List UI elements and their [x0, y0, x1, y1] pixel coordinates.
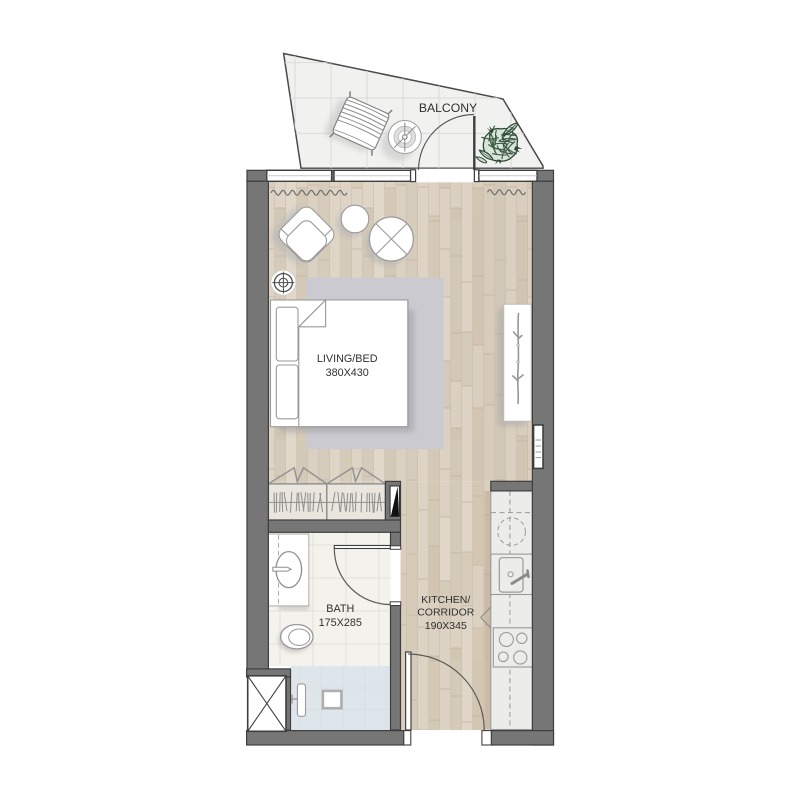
svg-text:KITCHEN/: KITCHEN/: [421, 594, 470, 606]
svg-text:190X345: 190X345: [425, 620, 467, 632]
svg-text:175X285: 175X285: [319, 617, 362, 629]
svg-text:380X430: 380X430: [326, 367, 369, 379]
svg-text:LIVING/BED: LIVING/BED: [317, 353, 378, 365]
svg-text:BATH: BATH: [326, 603, 354, 615]
svg-text:CORRIDOR: CORRIDOR: [417, 607, 475, 619]
svg-text:BALCONY: BALCONY: [419, 101, 477, 115]
